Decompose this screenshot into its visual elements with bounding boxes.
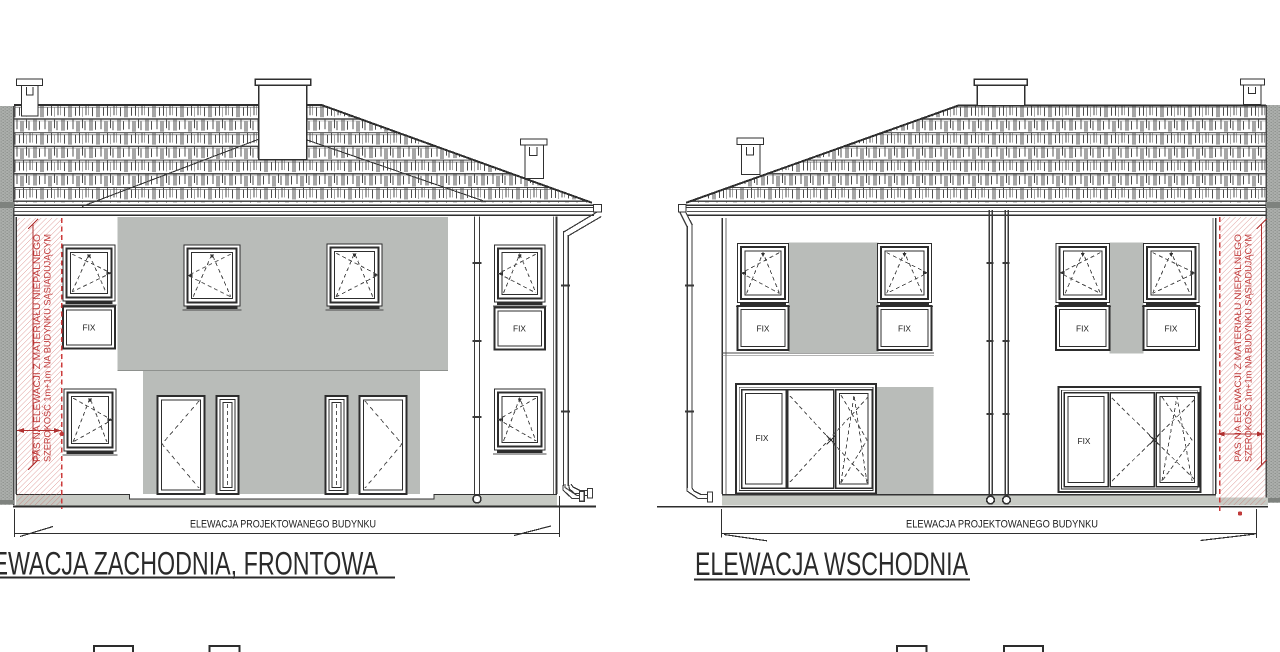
svg-text:SZEROKOŚĆ 1m+1m NA BUDYNKU SĄS: SZEROKOŚĆ 1m+1m NA BUDYNKU SĄSIADUJĄCYM [42,234,53,462]
svg-text:ELEWACJA PROJEKTOWANEGO BUDYNK: ELEWACJA PROJEKTOWANEGO BUDYNKU [190,519,376,531]
svg-text:FIX: FIX [83,323,96,333]
svg-text:PAS NA ELEWACJI Z MATERIAŁU NI: PAS NA ELEWACJI Z MATERIAŁU NIEPALNEGO [1233,234,1243,462]
svg-text:PAS NA ELEWACJI Z MATERIAŁU NI: PAS NA ELEWACJI Z MATERIAŁU NIEPALNEGO [32,234,42,462]
svg-text:FIX: FIX [1076,324,1089,334]
svg-text:1,0: 1,0 [32,450,39,460]
svg-text:FIX: FIX [1165,324,1178,334]
svg-text:ELEWACJA PROJEKTOWANEGO BUDYNK: ELEWACJA PROJEKTOWANEGO BUDYNKU [906,518,1098,530]
svg-text:ELEWACJA ZACHODNIA, FRONTOWA: ELEWACJA ZACHODNIA, FRONTOWA [0,546,378,582]
svg-text:FIX: FIX [1078,436,1091,446]
svg-text:ELEWACJA WSCHODNIA: ELEWACJA WSCHODNIA [695,546,968,582]
svg-text:FIX: FIX [756,433,769,443]
svg-text:SZEROKOŚĆ 1m+1m NA BUDYNKU SĄS: SZEROKOŚĆ 1m+1m NA BUDYNKU SĄSIADUJĄCYM [1243,234,1254,462]
svg-text:FIX: FIX [898,324,911,334]
svg-text:FIX: FIX [757,324,770,334]
svg-text:FIX: FIX [513,324,526,334]
